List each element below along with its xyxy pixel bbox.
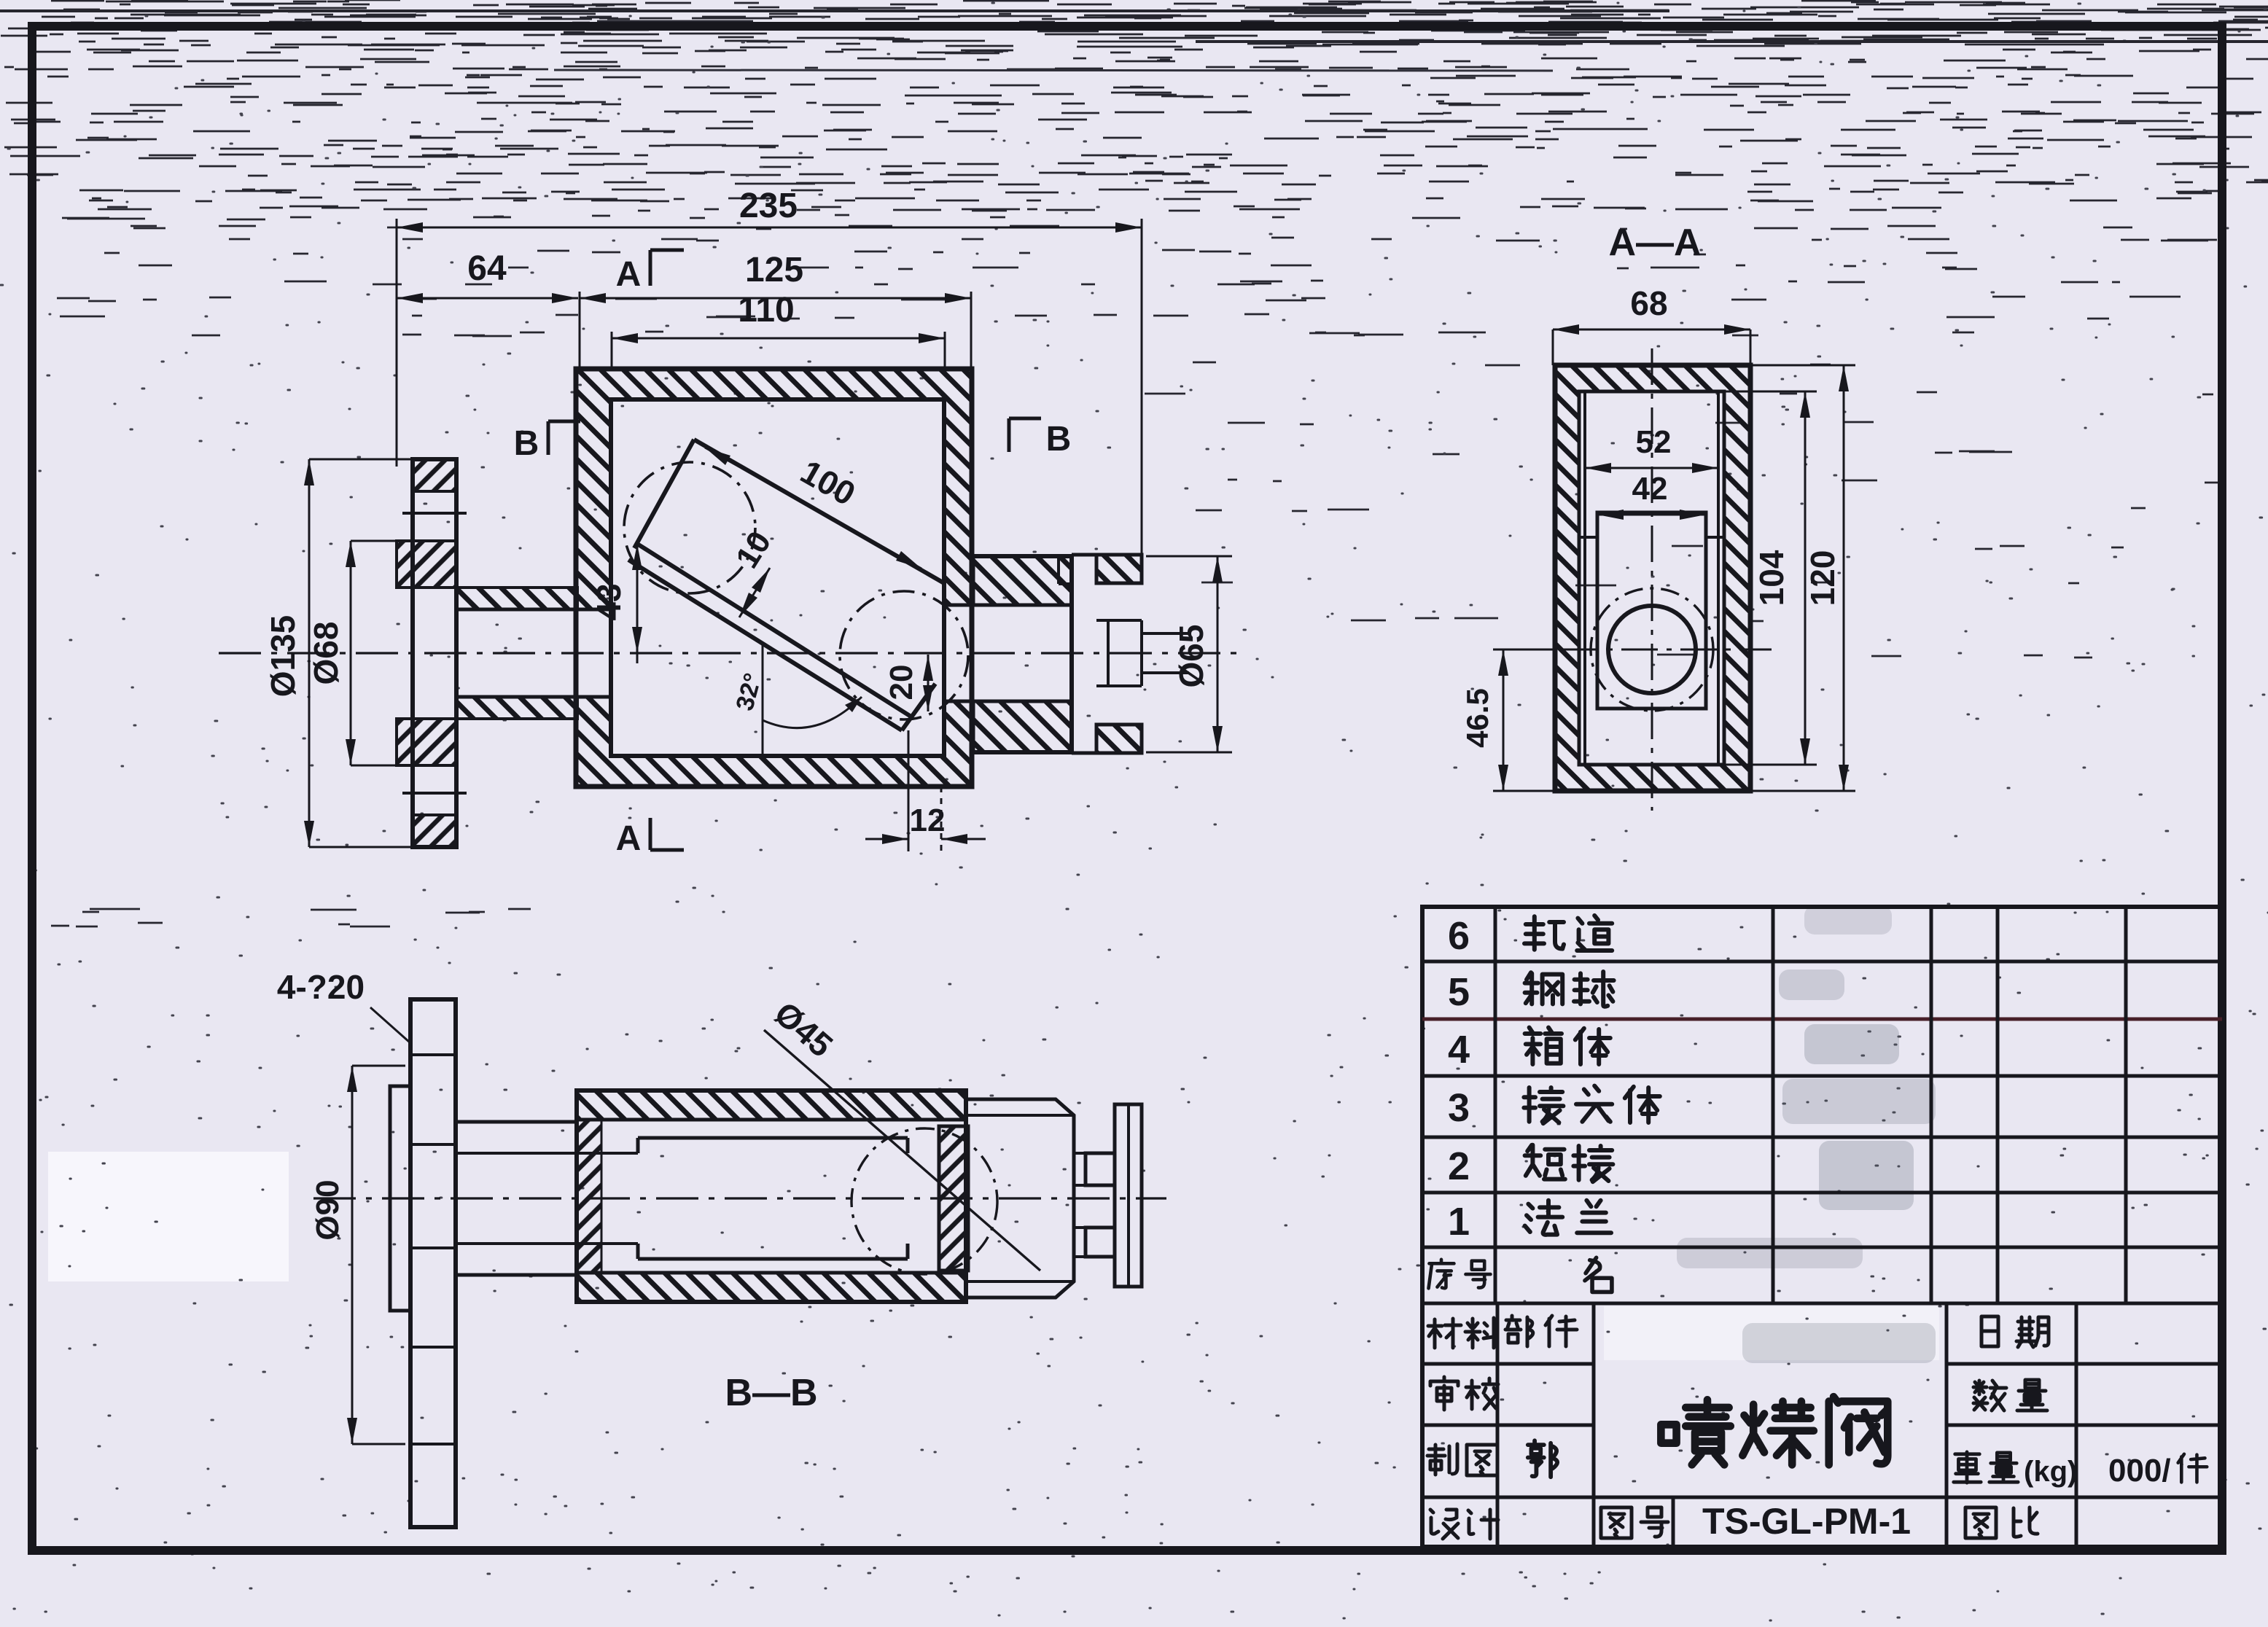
svg-text:68: 68	[1630, 284, 1667, 322]
svg-text:000/: 000/	[2108, 1453, 2171, 1489]
svg-text:Ø90: Ø90	[310, 1179, 346, 1240]
svg-text:TS-GL-PM-1: TS-GL-PM-1	[1702, 1501, 1911, 1542]
svg-text:Ø68: Ø68	[307, 622, 345, 685]
svg-text:B—B: B—B	[725, 1372, 817, 1414]
svg-text:B: B	[1046, 420, 1072, 459]
svg-text:12: 12	[910, 803, 946, 838]
svg-text:6: 6	[1448, 914, 1470, 958]
svg-text:120: 120	[1804, 550, 1842, 606]
svg-text:52: 52	[1636, 424, 1672, 460]
svg-text:64: 64	[467, 249, 507, 288]
svg-text:(kg): (kg)	[2024, 1456, 2077, 1488]
svg-text:4-?20: 4-?20	[277, 968, 365, 1006]
svg-text:43: 43	[590, 583, 628, 620]
svg-text:A—A: A—A	[1608, 222, 1701, 264]
svg-text:1: 1	[1448, 1200, 1470, 1244]
svg-text:4: 4	[1448, 1028, 1470, 1072]
svg-text:3: 3	[1448, 1086, 1470, 1130]
svg-text:104: 104	[1753, 550, 1790, 606]
svg-text:110: 110	[738, 291, 794, 329]
svg-text:A: A	[616, 819, 642, 858]
svg-text:46.5: 46.5	[1460, 688, 1495, 748]
svg-text:125: 125	[745, 251, 803, 289]
svg-text:20: 20	[884, 665, 919, 701]
svg-text:5: 5	[1448, 970, 1470, 1014]
svg-text:A: A	[616, 255, 642, 294]
svg-text:B: B	[514, 424, 539, 463]
svg-text:42: 42	[1632, 471, 1668, 507]
svg-text:2: 2	[1448, 1144, 1470, 1188]
svg-text:235: 235	[739, 187, 798, 225]
svg-text:Ø65: Ø65	[1172, 625, 1210, 688]
svg-text:Ø135: Ø135	[264, 615, 302, 698]
